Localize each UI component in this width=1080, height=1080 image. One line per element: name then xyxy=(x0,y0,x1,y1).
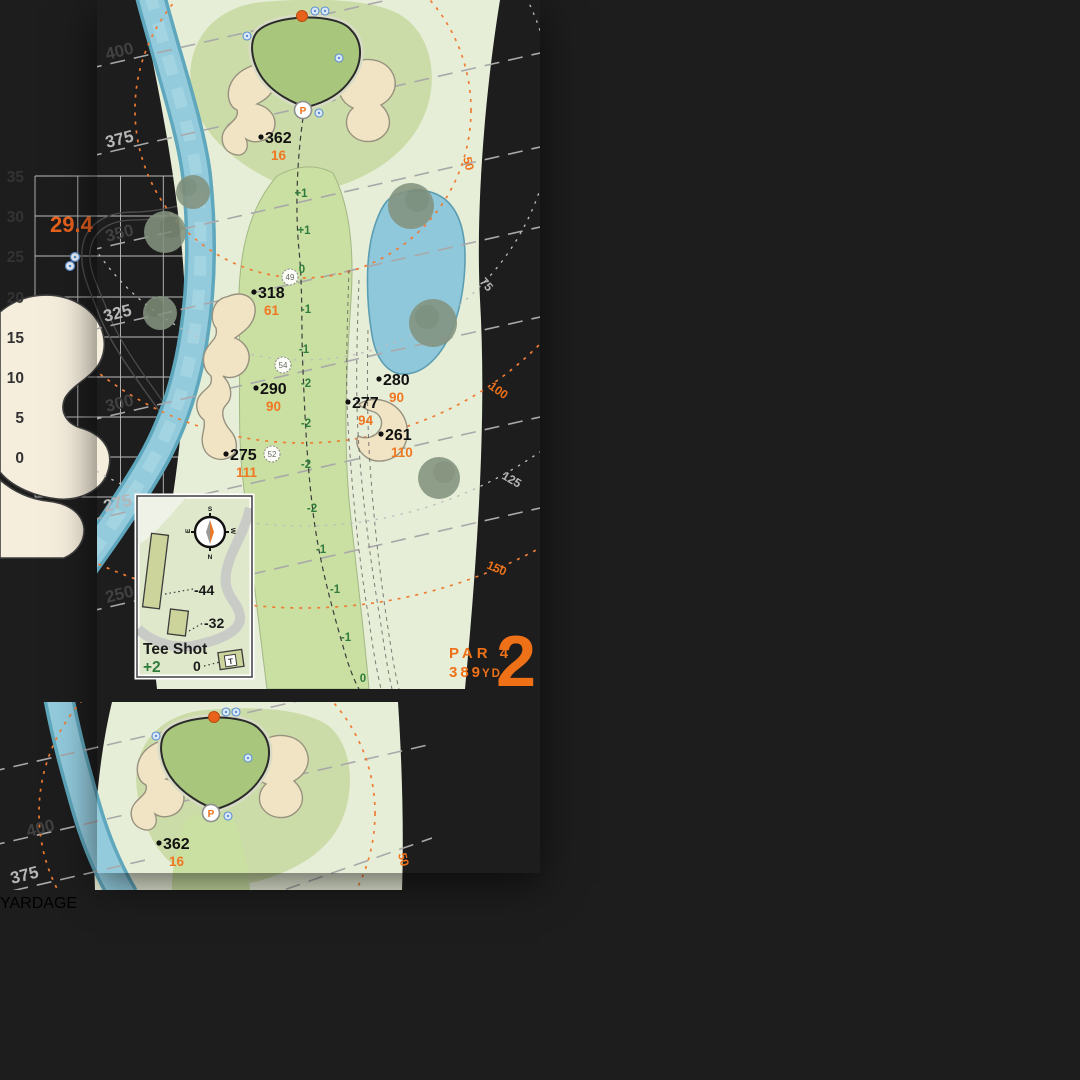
banner-title: YARDAGE xyxy=(0,895,77,912)
svg-text:290: 290 xyxy=(260,381,287,398)
inset-title: Tee Shot xyxy=(143,641,207,658)
flipped-page-back xyxy=(97,0,540,184)
svg-text:325: 325 xyxy=(101,301,133,326)
svg-text:+1: +1 xyxy=(294,188,308,200)
svg-text:52: 52 xyxy=(268,450,277,459)
svg-text:125: 125 xyxy=(500,468,525,490)
svg-text:350: 350 xyxy=(103,221,135,246)
tee-marker-icon: T xyxy=(218,649,244,669)
svg-text:35: 35 xyxy=(7,169,25,186)
svg-text:0: 0 xyxy=(360,673,366,685)
yardage-value: 389 xyxy=(449,664,483,681)
yardage-banner: YARDAGE xyxy=(0,895,1080,913)
svg-text:280: 280 xyxy=(383,372,410,389)
svg-text:N: N xyxy=(208,554,213,561)
svg-text:-2: -2 xyxy=(301,418,311,430)
svg-text:318: 318 xyxy=(258,285,285,302)
svg-text:-1: -1 xyxy=(330,584,341,596)
svg-text:150: 150 xyxy=(485,558,509,579)
svg-text:250: 250 xyxy=(103,582,135,607)
svg-text:100: 100 xyxy=(486,379,511,402)
svg-text:-1: -1 xyxy=(341,632,352,644)
tee-shot-inset: -44 -32 0 T Tee Shot +2 xyxy=(137,496,252,677)
svg-text:49: 49 xyxy=(286,273,295,282)
svg-text:400: 400 xyxy=(24,816,56,841)
mid-tee xyxy=(167,609,188,636)
svg-text:75: 75 xyxy=(477,275,497,295)
svg-text:-44: -44 xyxy=(194,582,214,598)
svg-text:20: 20 xyxy=(7,290,24,307)
svg-text:30: 30 xyxy=(7,209,24,226)
svg-text:-1: -1 xyxy=(316,544,327,556)
svg-text:-2: -2 xyxy=(307,503,317,515)
front-depth-value: 29.4 xyxy=(50,212,94,237)
svg-text:5: 5 xyxy=(15,410,24,427)
svg-text:61: 61 xyxy=(264,303,280,318)
svg-text:-1: -1 xyxy=(299,344,310,356)
svg-text:-1: -1 xyxy=(301,304,312,316)
svg-text:261: 261 xyxy=(385,427,412,444)
svg-text:E: E xyxy=(185,528,192,533)
svg-text:54: 54 xyxy=(279,361,288,370)
svg-text:0: 0 xyxy=(15,450,24,467)
svg-text:0: 0 xyxy=(193,658,201,674)
svg-text:375: 375 xyxy=(8,863,40,888)
svg-text:10: 10 xyxy=(7,370,24,387)
svg-text:110: 110 xyxy=(391,445,413,460)
svg-text:-32: -32 xyxy=(204,615,224,631)
svg-text:277: 277 xyxy=(352,395,379,412)
svg-text:W: W xyxy=(229,528,236,535)
svg-text:-2: -2 xyxy=(301,459,311,471)
svg-text:94: 94 xyxy=(358,413,374,428)
svg-text:-2: -2 xyxy=(301,378,311,390)
hole-number: 2 xyxy=(496,622,536,689)
svg-text:25: 25 xyxy=(7,249,25,266)
svg-text:15: 15 xyxy=(7,330,25,347)
svg-text:90: 90 xyxy=(266,399,281,414)
svg-text:300: 300 xyxy=(103,391,135,416)
svg-text:111: 111 xyxy=(236,465,258,480)
left-yardage-book: P 400 375 350 325 xyxy=(97,0,540,873)
yardage-book-product-shot: P 400 375 350 325 xyxy=(0,0,1080,1080)
svg-text:90: 90 xyxy=(389,390,404,405)
svg-text:S: S xyxy=(208,506,213,513)
svg-text:0: 0 xyxy=(299,264,305,276)
svg-text:275: 275 xyxy=(230,447,257,464)
svg-text:+1: +1 xyxy=(297,225,311,237)
inset-score: +2 xyxy=(143,659,161,676)
